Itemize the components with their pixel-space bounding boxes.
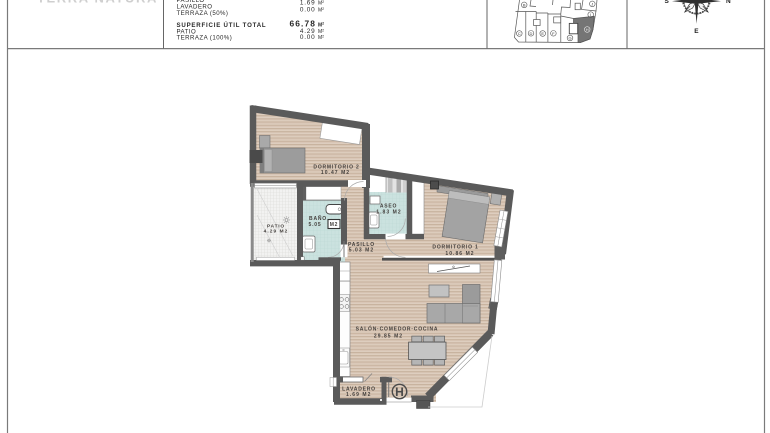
svg-text:29.85 M2: 29.85 M2 — [374, 333, 403, 339]
svg-text:1.83 M2: 1.83 M2 — [376, 209, 401, 215]
svg-text:BAÑO: BAÑO — [309, 215, 327, 222]
svg-text:I: I — [590, 12, 591, 17]
svg-text:E: E — [541, 31, 544, 36]
svg-text:M2: M2 — [330, 222, 339, 228]
svg-text:TERRA NATURA: TERRA NATURA — [37, 0, 158, 5]
svg-text:5.05: 5.05 — [309, 222, 322, 228]
svg-text:C: C — [518, 31, 521, 36]
svg-text:N: N — [726, 0, 731, 5]
svg-text:H: H — [395, 385, 404, 399]
svg-text:4.29 M2: 4.29 M2 — [264, 229, 289, 235]
svg-text:TERRAZA (100%): TERRAZA (100%) — [177, 35, 233, 42]
svg-text:E: E — [694, 28, 699, 35]
svg-text:10.86 M2: 10.86 M2 — [445, 251, 474, 257]
svg-text:0.00: 0.00 — [300, 34, 316, 41]
svg-text:D: D — [530, 31, 533, 36]
svg-text:G: G — [568, 36, 571, 41]
svg-text:10.47 M2: 10.47 M2 — [321, 170, 350, 176]
svg-text:B: B — [523, 2, 526, 7]
svg-text:66.78: 66.78 — [290, 18, 316, 28]
svg-text:S: S — [665, 0, 670, 5]
svg-text:H: H — [586, 27, 589, 32]
svg-text:DORMITORIO 1: DORMITORIO 1 — [432, 244, 478, 250]
svg-text:SALÓN·COMEDOR·COCINA: SALÓN·COMEDOR·COCINA — [356, 324, 439, 332]
svg-text:TERRAZA (50%): TERRAZA (50%) — [177, 10, 229, 17]
svg-text:0.00: 0.00 — [300, 7, 316, 14]
svg-text:1.69 M2: 1.69 M2 — [346, 392, 371, 398]
svg-text:5.03 M2: 5.03 M2 — [349, 247, 374, 253]
svg-text:J: J — [591, 1, 593, 6]
